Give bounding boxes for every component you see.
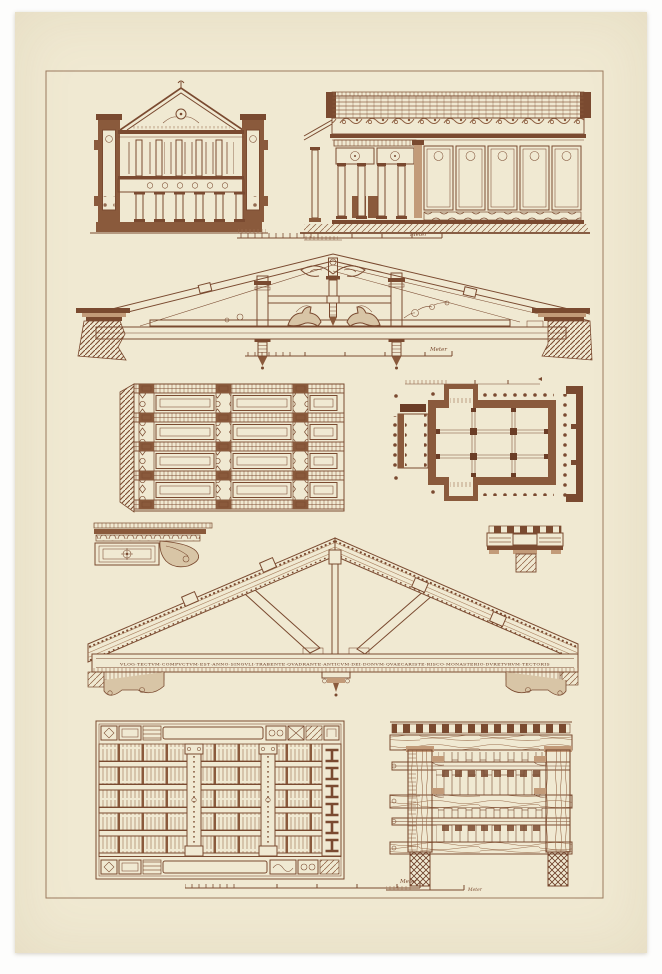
scale-unit-label: Meter [409,232,427,238]
scale-unit-label: Meter [429,347,447,353]
figure-basilica-longitudinal-section [300,92,591,240]
plate-photo: Meter [0,0,662,974]
figure-basilica-cross-section [90,81,268,233]
figure-temple-floor-plan [388,377,583,502]
scale-bar-truss: Meter [245,347,452,356]
mini-scale-bar [238,229,266,233]
scale-bar-bottom: Meter [185,879,420,888]
engraving: Meter [0,0,662,974]
scale-bar-plan [405,377,542,384]
tie-beam-inscription: VLOG·TECTVM·COMPVCTVM·EST·ANNO·SINGVLI·T… [119,662,550,667]
figure-coffered-ceiling-plan [120,384,344,512]
figure-architrave-beam-junction-detail [487,526,563,572]
scale-unit-label: Meter [467,887,483,893]
figure-coffered-ceiling-elevation [96,721,344,879]
figure-cornice-soffit-detail [94,523,212,567]
figure-timber-ceiling-cross-section: Meter [386,722,572,893]
figure-large-timber-truss: VLOG·TECTVM·COMPVCTVM·EST·ANNO·SINGVLI·T… [88,538,578,697]
figure-ornamented-king-post-truss: Meter [76,254,592,370]
scale-bar-section: Meter [386,885,483,893]
